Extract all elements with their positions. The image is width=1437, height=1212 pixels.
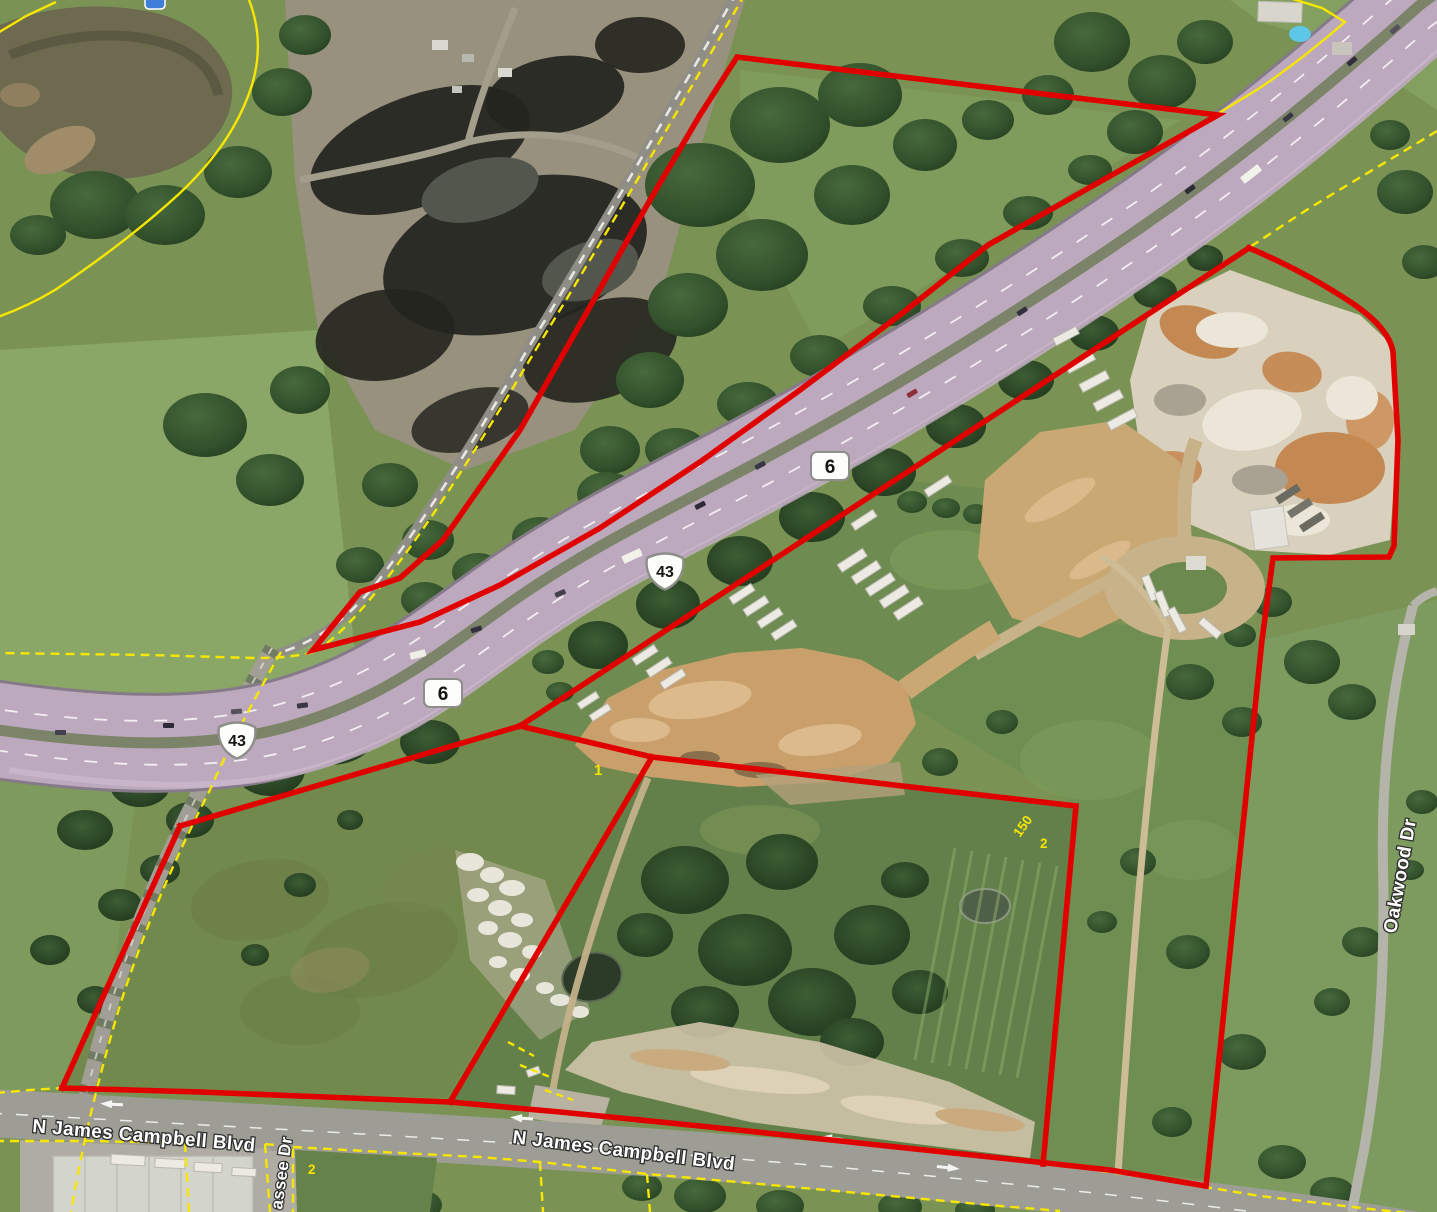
route-shield-6-upper-label: 6 xyxy=(825,457,836,478)
lot-annotation-2-south: 2 xyxy=(308,1162,316,1177)
satellite-parcel-map: 6 43 6 43 N James Campbell Blvd N James … xyxy=(0,0,1437,1212)
route-shield-6-lower: 6 xyxy=(424,679,462,707)
route-shield-6-upper: 6 xyxy=(811,452,849,480)
route-shield-43-upper-label: 43 xyxy=(656,564,674,581)
route-shield-6-lower-label: 6 xyxy=(438,684,449,705)
warehouse-area xyxy=(20,1140,300,1212)
swimming-pool xyxy=(1289,26,1311,42)
map-canvas[interactable]: 6 43 6 43 N James Campbell Blvd N James … xyxy=(0,0,1437,1212)
map-marker-blue xyxy=(145,0,165,9)
river xyxy=(0,6,232,184)
parcel-2-field xyxy=(295,1150,437,1212)
route-shield-43-lower-label: 43 xyxy=(228,733,246,750)
lot-annotation-2-east: 2 xyxy=(1040,836,1048,851)
coal-yard xyxy=(285,0,745,470)
lot-annotation-1: 1 xyxy=(594,762,602,779)
